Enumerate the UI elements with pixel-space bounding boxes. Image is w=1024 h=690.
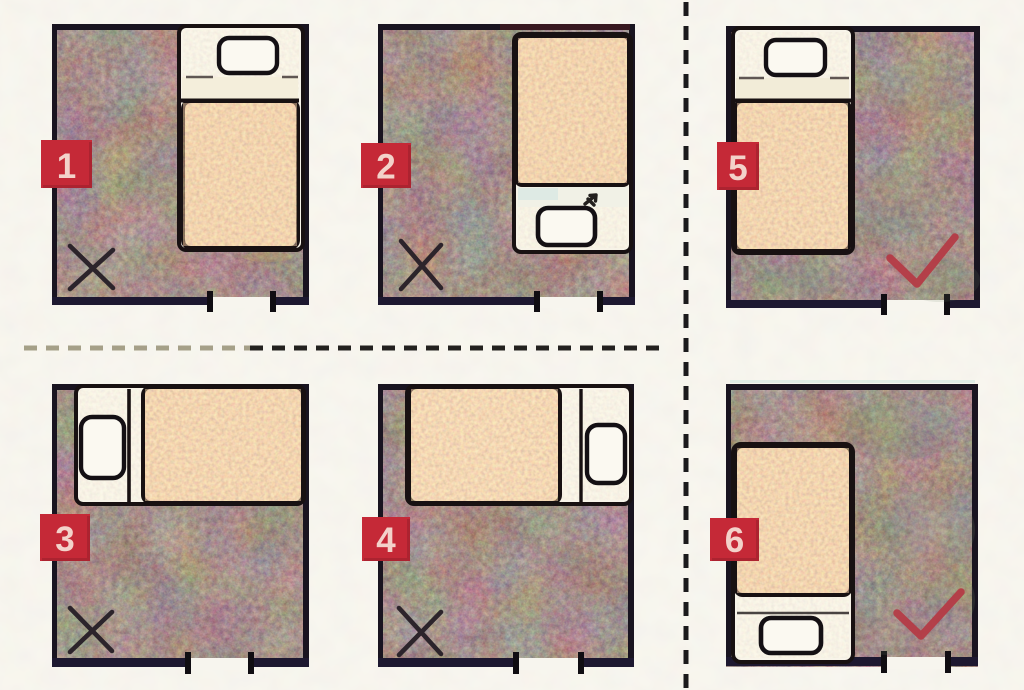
svg-text:4: 4 bbox=[376, 521, 396, 560]
svg-text:1: 1 bbox=[57, 147, 76, 186]
svg-text:2: 2 bbox=[376, 148, 395, 187]
svg-text:6: 6 bbox=[725, 521, 744, 560]
svg-text:3: 3 bbox=[55, 520, 74, 559]
svg-text:5: 5 bbox=[728, 149, 747, 188]
